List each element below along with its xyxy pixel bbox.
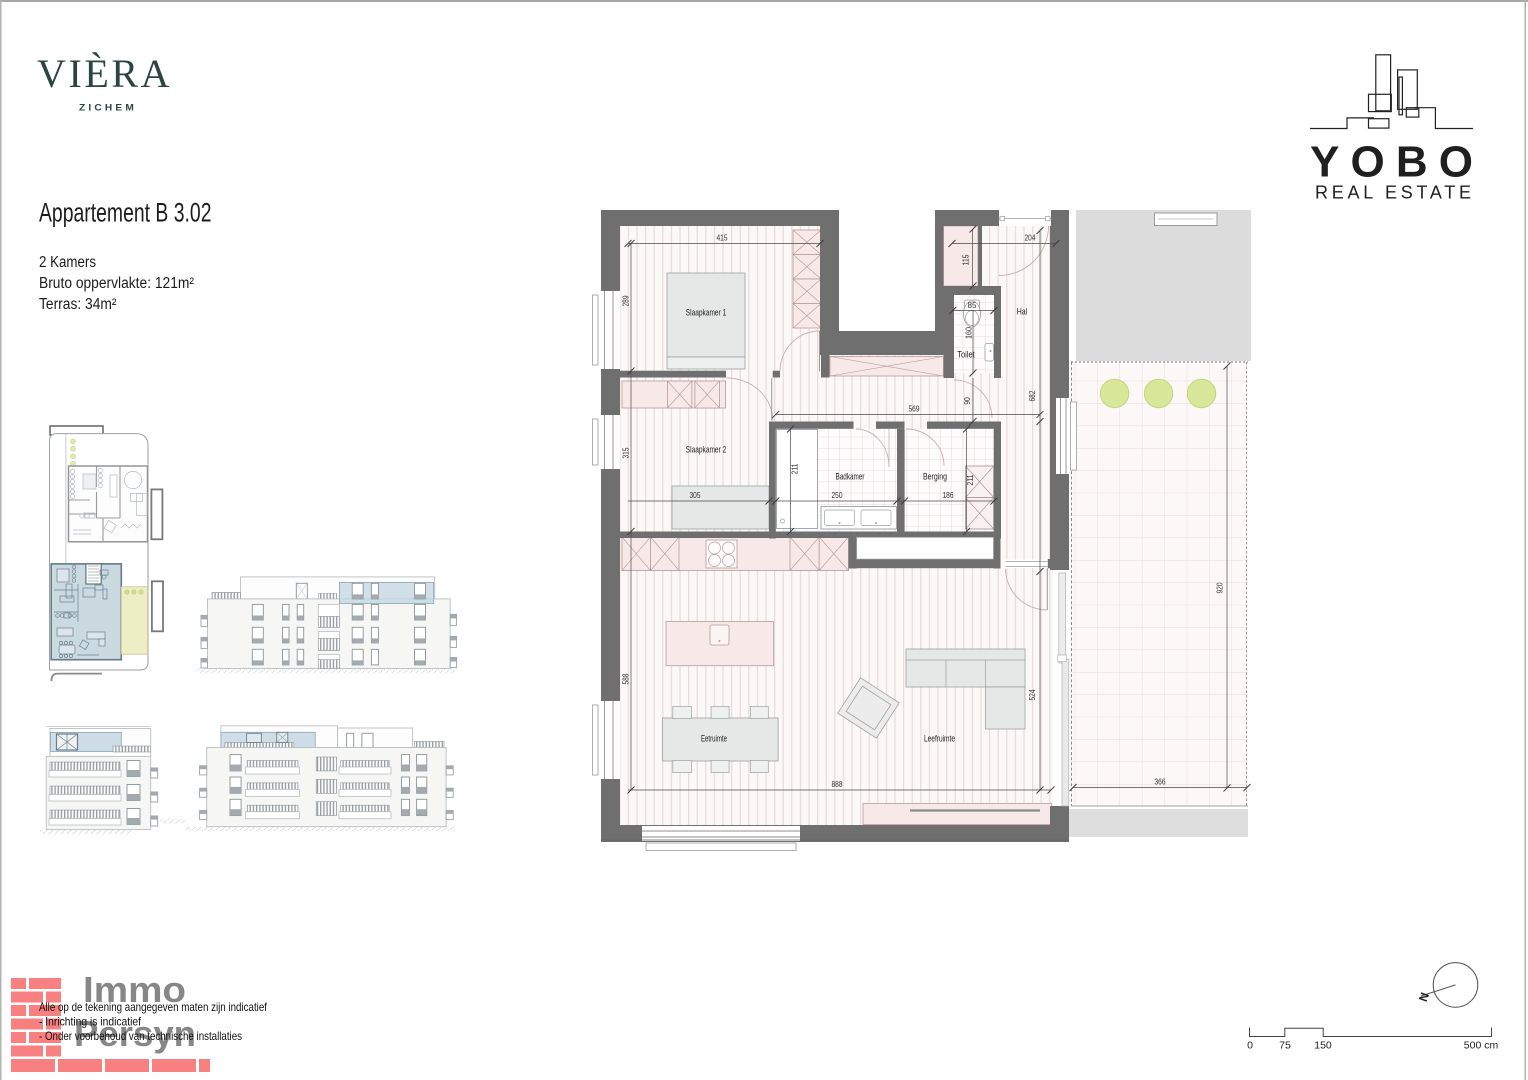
svg-text:150: 150 (1314, 1040, 1332, 1052)
svg-text:524: 524 (1028, 689, 1037, 700)
svg-text:500 cm: 500 cm (1464, 1040, 1499, 1052)
svg-text:Badkamer: Badkamer (836, 472, 865, 482)
svg-text:115: 115 (961, 254, 970, 265)
svg-text:Slaapkamer 2: Slaapkamer 2 (686, 445, 727, 455)
svg-text:85: 85 (968, 301, 978, 310)
svg-text:- Inrichting is indicatief: - Inrichting is indicatief (39, 1016, 142, 1029)
svg-text:0: 0 (1247, 1040, 1253, 1052)
svg-text:Appartement B 3.02: Appartement B 3.02 (39, 198, 212, 228)
svg-text:305: 305 (690, 491, 701, 500)
svg-text:204: 204 (1025, 234, 1036, 243)
svg-text:- Onder voorbehoud van technis: - Onder voorbehoud van technische instal… (39, 1030, 242, 1043)
svg-text:Slaapkamer 1: Slaapkamer 1 (686, 308, 727, 318)
svg-text:366: 366 (1155, 778, 1166, 787)
svg-text:211: 211 (790, 463, 799, 474)
svg-text:90: 90 (963, 397, 972, 405)
svg-text:588: 588 (622, 673, 631, 684)
svg-text:682: 682 (1028, 390, 1037, 401)
svg-text:Leefruimte: Leefruimte (924, 734, 955, 744)
svg-text:Eetruimte: Eetruimte (701, 734, 727, 744)
svg-text:Toilet: Toilet (957, 350, 975, 360)
svg-text:250: 250 (832, 491, 843, 500)
svg-text:REAL ESTATE: REAL ESTATE (1315, 183, 1471, 203)
svg-text:186: 186 (943, 491, 954, 500)
svg-text:Alle op de tekening aangegeven: Alle op de tekening aangegeven maten zij… (39, 1001, 268, 1014)
svg-text:Bruto oppervlakte: 121m²: Bruto oppervlakte: 121m² (39, 275, 194, 292)
svg-text:75: 75 (1279, 1040, 1291, 1052)
svg-text:VIÈRA: VIÈRA (37, 51, 175, 96)
svg-text:2 Kamers: 2 Kamers (39, 254, 96, 271)
svg-text:920: 920 (1216, 582, 1225, 593)
svg-text:315: 315 (622, 447, 631, 458)
svg-text:415: 415 (717, 234, 728, 243)
svg-text:289: 289 (622, 295, 631, 306)
svg-text:569: 569 (909, 404, 920, 413)
svg-text:888: 888 (832, 780, 843, 789)
svg-text:ZICHEM: ZICHEM (79, 103, 137, 114)
svg-text:Berging: Berging (923, 472, 947, 482)
svg-text:Hal: Hal (1017, 307, 1028, 317)
svg-text:Terras: 34m²: Terras: 34m² (39, 296, 117, 313)
svg-text:160: 160 (965, 327, 974, 339)
svg-text:211: 211 (966, 474, 975, 485)
